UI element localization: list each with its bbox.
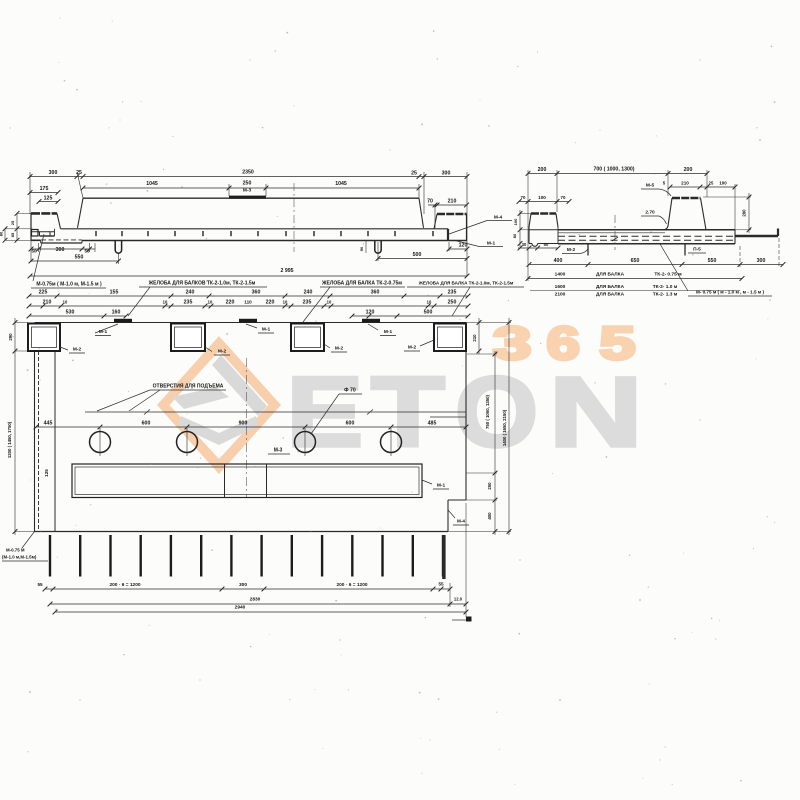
svg-text:400: 400: [487, 512, 492, 520]
svg-text:6: 6: [547, 318, 580, 369]
svg-text:220: 220: [266, 300, 275, 306]
svg-text:М-2: М-2: [218, 349, 227, 355]
svg-text:2100: 2100: [555, 292, 566, 298]
svg-text:М-1: М-1: [99, 329, 108, 335]
svg-text:10: 10: [163, 300, 168, 305]
svg-text:210: 210: [43, 300, 52, 306]
svg-text:М-2: М-2: [73, 347, 82, 353]
svg-text:50: 50: [544, 242, 549, 247]
svg-text:80: 80: [512, 233, 517, 238]
svg-text:М-3: М-3: [243, 188, 252, 194]
svg-text:200 · 6 = 1200: 200 · 6 = 1200: [109, 582, 140, 588]
svg-text:М-1: М-1: [384, 329, 393, 335]
svg-text:ЖЕЛОБА ДЛЯ БАЛКА ТК-2-1.0м, ТК: ЖЕЛОБА ДЛЯ БАЛКА ТК-2-1.0м, ТК-2-1.5м: [418, 281, 514, 286]
svg-text:900: 900: [239, 421, 248, 427]
svg-text:360: 360: [371, 290, 380, 296]
svg-text:10: 10: [327, 300, 332, 305]
svg-text:250: 250: [243, 181, 252, 187]
svg-text:300: 300: [239, 582, 247, 588]
svg-text:12.0: 12.0: [454, 597, 463, 602]
svg-text:М-0.75 М: М-0.75 М: [6, 548, 25, 553]
svg-text:240: 240: [186, 290, 195, 296]
svg-text:485: 485: [428, 421, 437, 427]
svg-text:175: 175: [40, 186, 49, 192]
svg-text:Ф 70: Ф 70: [344, 388, 356, 394]
svg-text:ДЛЯ БАЛКА: ДЛЯ БАЛКА: [596, 284, 625, 290]
svg-text:500: 500: [424, 310, 433, 316]
svg-text:80: 80: [0, 231, 4, 236]
svg-text:210: 210: [681, 181, 689, 186]
svg-text:220: 220: [226, 300, 235, 306]
svg-text:М-3: М-3: [274, 448, 283, 454]
svg-text:400: 400: [554, 258, 563, 264]
svg-text:250: 250: [448, 300, 457, 306]
svg-text:2.70: 2.70: [645, 210, 655, 216]
svg-text:70: 70: [427, 199, 433, 205]
svg-text:100: 100: [538, 195, 546, 200]
svg-text:10: 10: [63, 300, 68, 305]
svg-text:55: 55: [37, 582, 43, 587]
svg-text:100: 100: [719, 181, 727, 186]
svg-text:250: 250: [487, 482, 492, 490]
svg-text:50: 50: [31, 249, 37, 254]
svg-text:500: 500: [413, 252, 422, 258]
svg-text:85: 85: [10, 232, 15, 237]
svg-text:550: 550: [75, 255, 84, 261]
svg-text:30: 30: [522, 242, 527, 247]
svg-text:ДЛЯ БАЛКА: ДЛЯ БАЛКА: [596, 292, 625, 298]
svg-text:ТК-2- 1.0 м: ТК-2- 1.0 м: [653, 284, 678, 290]
svg-text:М-2: М-2: [567, 247, 576, 253]
svg-text:2 995: 2 995: [281, 268, 294, 274]
svg-text:445: 445: [44, 421, 53, 427]
svg-text:125: 125: [44, 196, 53, 202]
svg-text:2940: 2940: [235, 605, 246, 611]
svg-text:ЖЕЛОБА ДЛЯ БАЛКОВ ТК-2-1.0м, Т: ЖЕЛОБА ДЛЯ БАЛКОВ ТК-2-1.0м, ТК-2-1.5м: [148, 281, 256, 287]
svg-text:210: 210: [448, 199, 457, 205]
svg-text:2350: 2350: [242, 170, 254, 176]
svg-text:25: 25: [10, 220, 15, 225]
svg-text:530: 530: [66, 310, 75, 316]
svg-text:750 ( 1050, 1350): 750 ( 1050, 1350): [485, 394, 490, 428]
svg-text:1600: 1600: [555, 284, 566, 290]
svg-text:240: 240: [304, 290, 313, 296]
svg-text:300: 300: [442, 171, 451, 177]
svg-text:550: 550: [708, 258, 717, 264]
svg-text:25: 25: [411, 171, 417, 177]
svg-text:600: 600: [142, 421, 151, 427]
svg-text:300: 300: [56, 247, 65, 253]
svg-text:360: 360: [252, 290, 261, 296]
svg-text:200 · 6 = 1200: 200 · 6 = 1200: [336, 582, 367, 588]
svg-text:П-5: П-5: [693, 247, 701, 253]
svg-text:100: 100: [513, 218, 518, 225]
svg-text:25: 25: [709, 181, 714, 186]
svg-text:650: 650: [631, 258, 640, 264]
svg-text:М-1: М-1: [437, 483, 446, 489]
svg-text:90: 90: [359, 246, 364, 251]
svg-text:10: 10: [427, 300, 432, 305]
svg-text:М-4: М-4: [494, 215, 503, 221]
svg-text:10: 10: [283, 300, 288, 305]
svg-text:120: 120: [366, 310, 375, 316]
svg-text:55: 55: [438, 582, 444, 587]
svg-text:70: 70: [521, 195, 526, 200]
svg-text:М- 0.75 м ( м - 1.0 м , м - 1.: М- 0.75 м ( м - 1.0 м , м - 1.5 м ): [696, 290, 765, 295]
svg-text:ТК-2- 1.3 м: ТК-2- 1.3 м: [653, 292, 678, 298]
svg-text:700 ( 1000, 1300): 700 ( 1000, 1300): [594, 167, 635, 173]
svg-text:М-2: М-2: [335, 346, 344, 352]
svg-text:155: 155: [110, 290, 119, 296]
svg-text:М-4: М-4: [457, 519, 465, 524]
svg-text:225: 225: [39, 290, 48, 296]
svg-text:235: 235: [303, 300, 312, 306]
svg-text:70: 70: [561, 195, 566, 200]
svg-text:280: 280: [742, 209, 747, 217]
svg-text:1400 ( 1650, 2150): 1400 ( 1650, 2150): [502, 409, 507, 446]
svg-text:125: 125: [44, 469, 49, 477]
svg-text:М-0.75м ( М-1.0 м, М-1.5 м ): М-0.75м ( М-1.0 м, М-1.5 м ): [36, 282, 102, 288]
svg-text:1400: 1400: [555, 272, 566, 278]
svg-text:ЖЕЛОБА ДЛЯ БАЛКА ТК-2-0.75м: ЖЕЛОБА ДЛЯ БАЛКА ТК-2-0.75м: [321, 281, 402, 287]
svg-text:235: 235: [448, 290, 457, 296]
svg-text:3: 3: [493, 318, 531, 369]
svg-text:5: 5: [600, 317, 636, 369]
svg-text:50: 50: [84, 249, 90, 254]
svg-text:1200 ( 1450, 1750): 1200 ( 1450, 1750): [7, 421, 12, 458]
svg-text:300: 300: [757, 258, 766, 264]
svg-text:М-2: М-2: [408, 345, 417, 351]
svg-text:200: 200: [684, 167, 693, 173]
svg-text:М-5: М-5: [646, 183, 655, 189]
svg-text:200: 200: [538, 167, 547, 173]
svg-text:М-1: М-1: [262, 327, 271, 333]
svg-text:10: 10: [208, 300, 213, 305]
svg-text:ДЛЯ БАЛКА: ДЛЯ БАЛКА: [596, 272, 625, 278]
svg-text:2830: 2830: [250, 597, 261, 603]
svg-text:1045: 1045: [335, 181, 347, 187]
svg-text:N: N: [549, 358, 643, 468]
svg-text:110: 110: [244, 300, 252, 305]
svg-text:5: 5: [663, 181, 666, 186]
svg-text:М-1: М-1: [487, 241, 496, 247]
svg-text:O: O: [455, 357, 538, 467]
svg-text:ОТВЕРСТИЯ ДЛЯ ПОДЪЕМА: ОТВЕРСТИЯ ДЛЯ ПОДЪЕМА: [153, 384, 224, 390]
svg-text:235: 235: [184, 300, 193, 306]
svg-text:1045: 1045: [146, 181, 158, 187]
svg-text:210: 210: [472, 334, 477, 342]
svg-text:290: 290: [8, 333, 13, 341]
svg-text:600: 600: [346, 421, 355, 427]
svg-text:160: 160: [112, 310, 121, 316]
svg-text:(М-1.0 м,М-1.5м): (М-1.0 м,М-1.5м): [2, 555, 37, 560]
